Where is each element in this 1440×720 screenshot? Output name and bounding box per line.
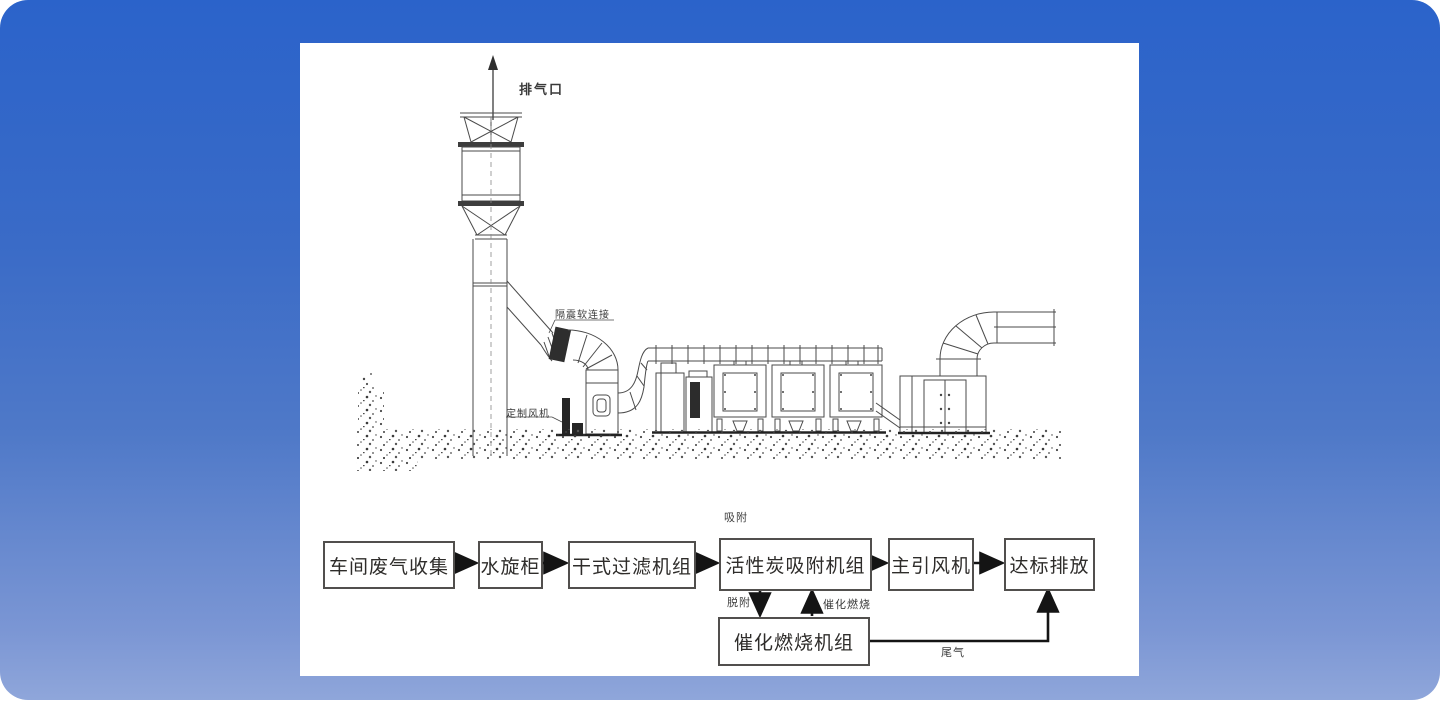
adsorption-unit [652,361,886,433]
diagram-panel: 排气口 隔震软连接 定制风机 吸附 脱附 催化燃烧 尾气 车间废气收集 水旋柜 … [300,43,1139,676]
ground-texture [356,373,1062,471]
catalytic-unit [656,363,712,432]
exhaust-outlet-label: 排气口 [519,79,564,98]
flow-box-catalytic-combustion-unit: 催化燃烧机组 [718,617,870,666]
transfer-chute [876,403,900,428]
flow-box-dry-filter-unit: 干式过滤机组 [568,541,696,589]
tail-gas-annotation: 尾气 [941,644,965,660]
flow-box-compliant-discharge: 达标排放 [1004,538,1095,591]
adsorption-annotation: 吸附 [724,509,748,525]
catalytic-combustion-annotation: 催化燃烧 [823,596,871,612]
up-arrow-icon [488,55,498,70]
flow-box-water-spray-cabinet: 水旋柜 [478,541,543,589]
right-filter-unit [898,309,1056,433]
fan-outlet-duct [618,348,648,413]
flow-box-main-induced-draft-fan: 主引风机 [888,538,974,591]
flexible-joint-label: 隔震软连接 [555,306,610,321]
screenshot-canvas: 排气口 隔震软连接 定制风机 吸附 脱附 催化燃烧 尾气 车间废气收集 水旋柜 … [0,0,1440,720]
stack-drawing [458,55,524,456]
flow-box-workshop-gas-collection: 车间废气收集 [323,541,455,589]
custom-fan-label: 定制风机 [506,405,550,420]
flow-box-activated-carbon-adsorption-unit: 活性炭吸附机组 [719,538,872,591]
fan-unit [556,370,622,435]
desorption-annotation: 脱附 [727,594,751,610]
